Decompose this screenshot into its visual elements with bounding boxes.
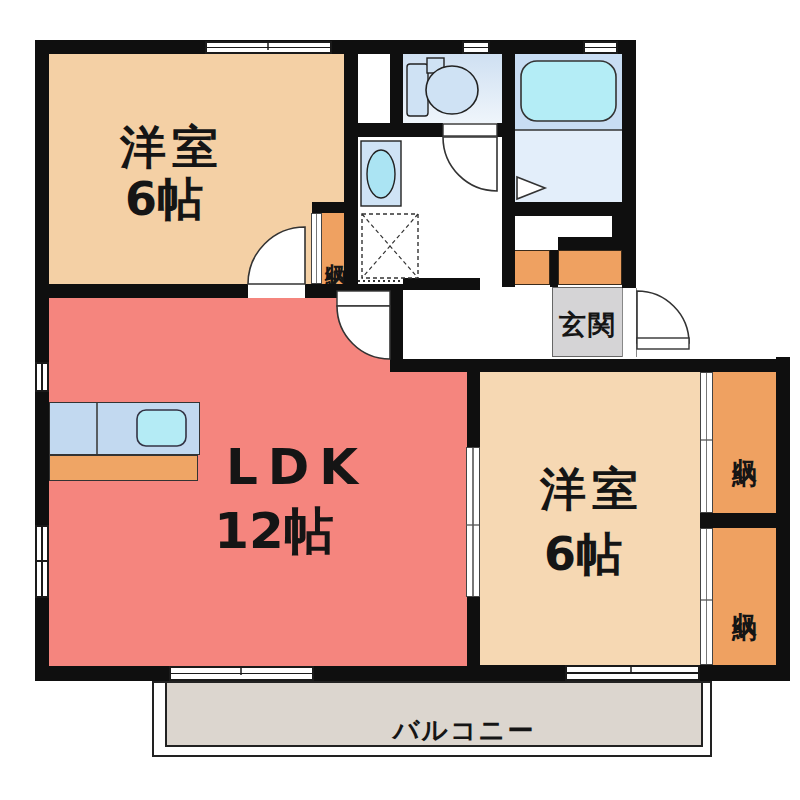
sliding-door-right-closet-bottom [700,528,713,665]
window-ldk-left-small [35,362,49,392]
sliding-door-ldk-right-room [466,447,480,597]
kitchen-counter-base [49,455,198,481]
west-room-right-size: 6帖 [544,531,622,577]
floor-plan: 収納 収納 収納 [0,0,800,800]
right-closet-top: 収納 [713,372,776,513]
entrance-label: 玄関 [559,311,617,338]
west-room-right-floor [480,372,700,665]
wall-top [35,40,636,54]
west-room-top-size: 6帖 [125,176,203,222]
toilet-room-floor [403,54,502,123]
balcony-label: バルコニー [393,717,535,743]
wall-bath-bottom [502,202,636,216]
window-ldk-left-large [35,525,49,598]
right-closet-bottom: 収納 [713,528,776,665]
shoe-closet-right [558,250,622,285]
wall-washroom-thin [403,278,480,290]
wall-right-closet-divider [700,513,790,528]
window-ldk-balcony [169,666,314,681]
west-room-top-name: 洋室 [120,124,224,170]
wall-bath-right [622,40,636,288]
door-opening-west-room [248,284,305,298]
bathroom-floor [515,130,622,202]
wall-west-room-right [344,40,358,298]
door-arc-entrance [637,291,689,343]
door-leaf-entrance [637,338,689,349]
sliding-door-right-closet-top [700,372,713,513]
wall-ldk-room-divider-top [467,372,480,447]
shoe-closet-left [513,250,550,285]
ldk-size: 12帖 [214,506,334,556]
ldk-name: LDK [226,442,368,492]
wall-west-room-bottom [35,284,403,298]
window-toilet [462,41,490,54]
wall-toilet-bottom-left [358,123,443,137]
right-closet-bottom-label: 収納 [732,591,757,603]
window-west-room-top [205,41,332,54]
bathroom-tub-zone [515,54,622,130]
washer-pan-diag1 [362,214,418,278]
wall-shoe-closet-top [558,237,636,250]
wall-corridor-bottom [390,359,790,372]
vanity-counter [361,141,401,206]
kitchen-counter [49,402,200,455]
wall-shoe-closet-left [505,250,513,287]
door-arc-toilet [443,137,497,191]
washing-machine-pan [362,214,418,278]
right-closet-top-label: 収納 [732,437,757,449]
corridor-floor [403,284,552,361]
sliding-door-west-room-closet [311,213,322,284]
west-room-right-name: 洋室 [540,466,644,512]
window-bathroom [583,41,618,54]
washer-pan-diag2 [362,214,418,278]
wall-shoe-closet-divider [550,250,558,287]
entrance-doorway [622,288,637,357]
window-right-room-balcony [565,665,700,681]
wall-closet-top [312,202,358,213]
door-leaf-toilet [443,124,497,136]
west-room-closet-label: 収納 [325,247,346,251]
vanity-sink [367,150,395,198]
